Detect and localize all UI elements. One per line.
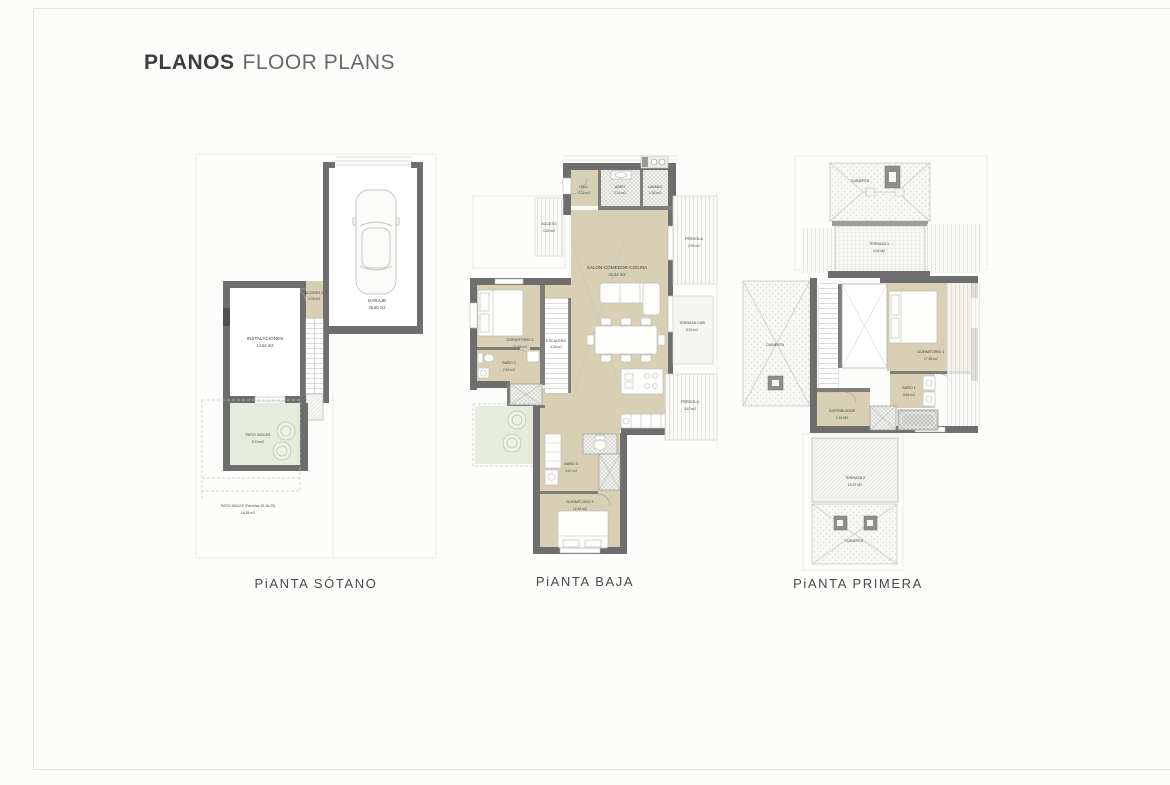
shower-icon — [870, 406, 896, 430]
room-area-garaje: 26.50 m2 — [368, 305, 386, 310]
page-title: PLANOSFLOOR PLANS — [144, 51, 395, 75]
room-label-cubierta-bottom: CUBIERTA — [845, 539, 864, 543]
room-label-terraza-cub: TERRAZA CUB — [679, 321, 705, 325]
patio-door-icon — [255, 397, 285, 401]
terraza1-area: TERRAZA 1 9.34 M2 — [801, 224, 983, 273]
plant-icon — [281, 426, 291, 436]
washing-machine-icon — [641, 156, 668, 168]
kitchen-counter-icon — [621, 414, 668, 428]
chimney-icon — [768, 376, 783, 390]
acceso-porch: ACCESO 3.20 m2 — [535, 198, 563, 256]
room-area-acceso2: 4.95 m2 — [308, 297, 320, 301]
pergola-slats — [801, 228, 835, 273]
service-block: HALL 2.02 m2 ASEO 2.24 m2 LAVADO 1.92 m2 — [563, 156, 676, 215]
cabinet-icon — [545, 434, 561, 468]
room-label-lavado: LAVADO — [648, 185, 663, 189]
room-area-patio: 8.10 m2 — [252, 440, 264, 444]
room-area-pergola1: 2.90 m2 — [688, 244, 700, 248]
room-area-instalaciones: 14.64 m2 — [256, 343, 274, 348]
instalaciones-room: INSTALACIONES 14.64 m2 — [223, 281, 306, 403]
floorplan-primera: CUBIERTA TERRAZA 1 9.34 M2 CUBIERTA — [735, 148, 990, 573]
caption-baja: PiANTA BAJA — [536, 574, 634, 589]
room-label-patio-parcelas: PATIO INGLES (Parcelas 15-16-29) — [221, 504, 275, 508]
room-area-bano2: 2.82 m2 — [503, 368, 515, 372]
washbasin-icon — [545, 470, 558, 485]
floorplan-baja: HALL 2.02 m2 ASEO 2.24 m2 LAVADO 1.92 m2… — [465, 148, 735, 573]
room-label-cubierta-left: CUBIERTA — [766, 343, 785, 347]
baja-plan-svg: HALL 2.02 m2 ASEO 2.24 m2 LAVADO 1.92 m2… — [465, 148, 735, 573]
stairs-icon — [306, 318, 323, 420]
room-area-dormitorio3: 12.45 m2 — [573, 507, 587, 511]
room-label-patio: PATIO INGLES — [245, 433, 271, 437]
front-door-opening — [563, 178, 571, 194]
plant-icon — [277, 446, 287, 456]
toilet-icon — [583, 434, 617, 454]
room-area-bano1: 3.64 m2 — [903, 393, 915, 397]
bed-icon — [889, 291, 937, 343]
window-icon — [223, 308, 230, 326]
room-area-terraza-cub: 5.61 m2 — [686, 328, 698, 332]
chimney-icon — [864, 516, 877, 530]
cubierta-left: CUBIERTA — [743, 281, 810, 406]
plant-icon — [512, 415, 522, 425]
washbasin-icon — [923, 392, 935, 406]
room-label-salon: SALON-COMEDOR-COCINA — [587, 265, 648, 270]
room-area-patio-parcelas: 16.38 m2 — [241, 511, 255, 515]
stair-landing — [545, 334, 568, 352]
pergola-slats — [927, 224, 983, 273]
car-icon — [353, 190, 399, 294]
garage-room: GARAJE 26.50 m2 — [323, 157, 423, 334]
pergola2-area: PÉRGOLA 3.52 m2 — [665, 374, 717, 440]
floorplan-sotano: GARAJE 26.50 m2 ACCESO 2 4.95 m2 INSTALA… — [190, 148, 445, 573]
room-area-lavado: 1.92 m2 — [649, 191, 661, 195]
bed-icon — [558, 511, 608, 548]
bed-icon — [478, 290, 523, 336]
page-title-sub: FLOOR PLANS — [243, 51, 396, 74]
caption-sotano: PiANTA SÓTANO — [255, 576, 378, 591]
first-floor-interior: DORMITORIO 1 17.55 m2 BAÑO 1 3.64 m2 DIS… — [810, 271, 983, 433]
terraza2-area: TERRAZA 2 10.37 M2 — [812, 438, 898, 502]
room-label-instalaciones: INSTALACIONES — [247, 336, 283, 341]
patio-baja — [473, 404, 537, 466]
sotano-plan-svg: GARAJE 26.50 m2 ACCESO 2 4.95 m2 INSTALA… — [190, 148, 445, 573]
caption-primera: PiANTA PRIMERA — [793, 576, 923, 591]
toilet-icon — [478, 353, 494, 363]
patio-ingles: PATIO INGLES 8.10 m2 — [223, 403, 308, 471]
shower-icon — [599, 454, 620, 490]
washbasin-icon — [527, 351, 539, 362]
room-label-acceso2: ACCESO 2 — [305, 291, 324, 295]
room-area-aseo: 2.24 m2 — [614, 191, 626, 195]
garage-door-icon — [336, 157, 412, 165]
terraza-cub-area: TERRAZA CUB 5.61 m2 — [673, 296, 713, 364]
room-area-dormitorio1: 17.55 m2 — [924, 357, 938, 361]
room-area-salon: 41.44 m2 — [608, 272, 626, 277]
room-label-bano1: BAÑO 1 — [902, 385, 916, 390]
roof-window-icon — [866, 188, 875, 196]
room-label-cubierta-top: CUBIERTA — [851, 179, 870, 183]
cubierta-top: CUBIERTA — [830, 163, 930, 226]
room-area-pergola2: 3.52 m2 — [684, 407, 696, 411]
room-label-dormitorio1: DORMITORIO 1 — [918, 350, 945, 354]
plant-icon — [507, 438, 517, 448]
cubierta-bottom: CUBIERTA — [812, 504, 897, 564]
sink-icon — [611, 171, 631, 179]
stair-void — [842, 284, 887, 368]
room-label-dormitorio2: DORMITORIO 2 — [507, 338, 534, 342]
washbasin-icon — [478, 368, 489, 378]
bathtub-icon — [898, 410, 938, 430]
room-label-bano3: BAÑO 3 — [564, 461, 578, 466]
room-label-terraza1: TERRAZA 1 — [869, 242, 889, 246]
washbasin-icon — [923, 376, 935, 390]
room-label-hall: HALL — [579, 185, 588, 189]
pergola1-area: PÉRGOLA 2.90 m2 — [673, 196, 717, 284]
room-label-aseo: ASEO — [615, 185, 625, 189]
room-label-distribuidor: DISTRIBUIDOR — [829, 409, 856, 413]
chimney-icon — [834, 516, 847, 530]
primera-plan-svg: CUBIERTA TERRAZA 1 9.34 M2 CUBIERTA — [735, 148, 990, 573]
room-area-terraza1: 9.34 M2 — [873, 249, 885, 253]
room-label-garaje: GARAJE — [368, 298, 386, 303]
room-label-bano2: BAÑO 2 — [502, 360, 516, 365]
room-area-distribuidor: 1.91 M2 — [836, 416, 848, 420]
page-title-main: PLANOS — [144, 51, 235, 74]
room-area-acceso: 3.20 m2 — [543, 229, 555, 233]
room-area-bano3: 3.57 m2 — [565, 469, 577, 473]
kitchen-island-icon — [621, 369, 663, 394]
room-label-escalera: ESCALERA — [546, 339, 566, 343]
stairs-icon — [819, 284, 842, 392]
room-label-pergola1: PÉRGOLA — [685, 236, 703, 241]
roof-window-icon — [895, 188, 904, 196]
room-label-pergola2: PÉRGOLA — [681, 399, 699, 404]
railing-slats — [947, 283, 983, 426]
chimney-icon — [885, 166, 900, 188]
room-area-terraza2: 10.37 M2 — [848, 483, 862, 487]
room-label-terraza2: TERRAZA 2 — [845, 476, 865, 480]
room-label-dormitorio3: DORMITORIO 3 — [567, 500, 594, 504]
room-area-hall: 2.02 m2 — [578, 191, 590, 195]
room-area-escalera: 4.38 m2 — [550, 345, 562, 349]
escalera: ESCALERA 4.38 m2 — [545, 298, 571, 393]
room-label-acceso: ACCESO — [541, 222, 557, 226]
